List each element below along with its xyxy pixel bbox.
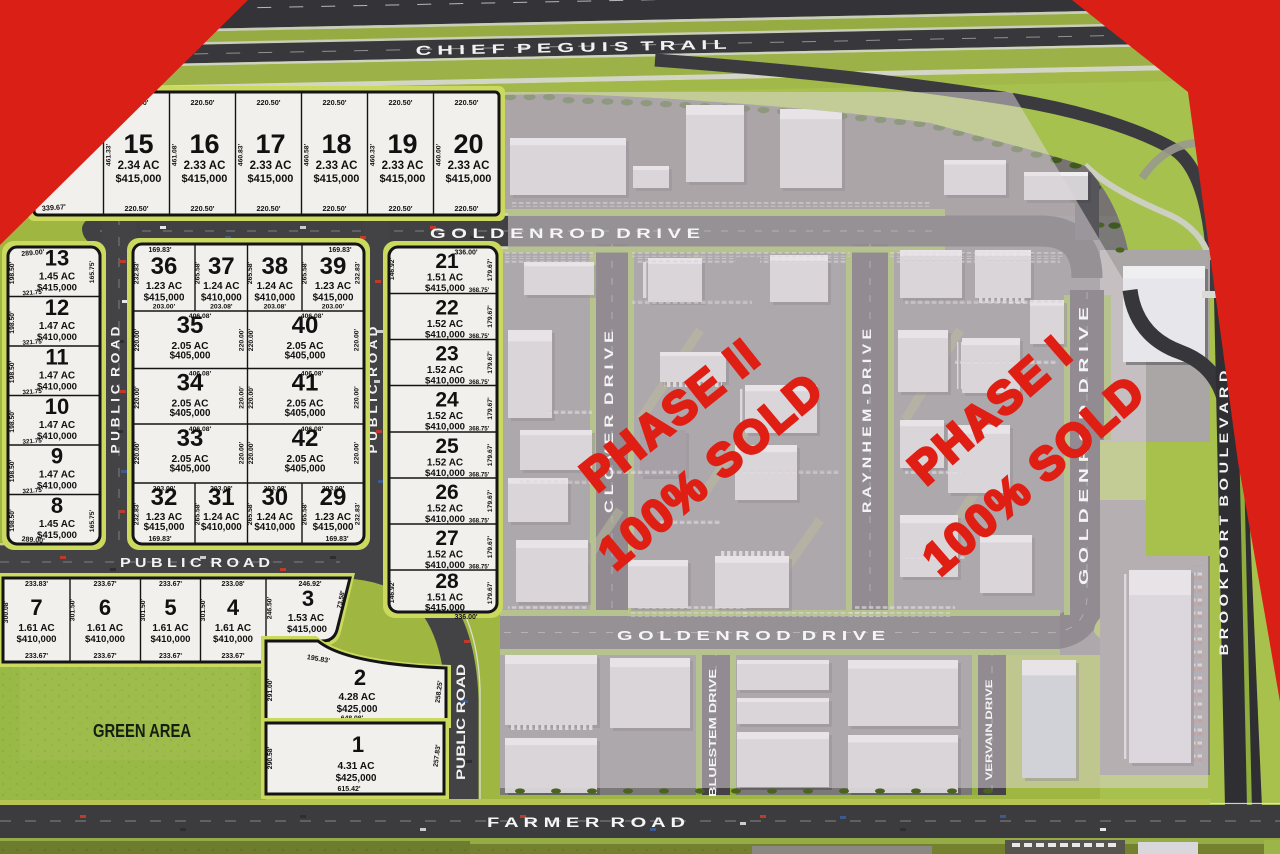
svg-text:4.28 AC: 4.28 AC — [339, 692, 377, 703]
svg-text:179.67': 179.67' — [487, 397, 494, 420]
svg-text:1.53 AC: 1.53 AC — [288, 613, 324, 624]
svg-text:220.50': 220.50' — [256, 204, 280, 213]
svg-text:220.00': 220.00' — [354, 328, 361, 351]
svg-text:169.83': 169.83' — [148, 247, 171, 254]
svg-text:$405,000: $405,000 — [285, 464, 326, 475]
svg-text:$415,000: $415,000 — [287, 624, 327, 635]
svg-text:1.23 AC: 1.23 AC — [146, 281, 182, 292]
svg-text:$415,000: $415,000 — [144, 522, 185, 533]
svg-text:406.08': 406.08' — [189, 426, 212, 433]
svg-text:$415,000: $415,000 — [116, 173, 162, 185]
svg-text:203.08': 203.08' — [264, 486, 287, 493]
svg-text:$415,000: $415,000 — [313, 293, 354, 304]
svg-text:1.47 AC: 1.47 AC — [39, 470, 75, 481]
svg-text:2: 2 — [354, 665, 366, 690]
svg-text:$410,000: $410,000 — [201, 522, 242, 533]
svg-text:28: 28 — [435, 570, 459, 593]
svg-text:$410,000: $410,000 — [85, 634, 125, 645]
svg-text:1.47 AC: 1.47 AC — [39, 420, 75, 431]
svg-text:265.58': 265.58' — [247, 502, 254, 525]
svg-text:220.50': 220.50' — [322, 98, 346, 107]
svg-text:233.67': 233.67' — [93, 581, 116, 588]
svg-text:165.75': 165.75' — [89, 260, 96, 283]
svg-text:$410,000: $410,000 — [425, 468, 465, 479]
svg-text:198.50': 198.50' — [9, 459, 16, 482]
svg-text:22: 22 — [435, 297, 458, 320]
svg-text:165.75': 165.75' — [89, 509, 96, 532]
svg-text:203.00': 203.00' — [153, 304, 176, 311]
svg-text:$405,000: $405,000 — [285, 351, 326, 362]
svg-text:301.50': 301.50' — [70, 598, 77, 621]
svg-text:406.08': 406.08' — [301, 313, 324, 320]
svg-text:9: 9 — [51, 444, 63, 469]
svg-text:232.83': 232.83' — [355, 261, 362, 284]
svg-text:368.75': 368.75' — [469, 472, 490, 479]
svg-text:233.08': 233.08' — [221, 581, 244, 588]
svg-text:6: 6 — [99, 595, 111, 620]
svg-text:460.83': 460.83' — [238, 143, 245, 166]
svg-text:1.52 AC: 1.52 AC — [427, 319, 463, 330]
svg-text:2.33 AC: 2.33 AC — [316, 160, 358, 172]
svg-text:$415,000: $415,000 — [144, 293, 185, 304]
svg-text:1.52 AC: 1.52 AC — [427, 458, 463, 469]
svg-text:4.31 AC: 4.31 AC — [338, 761, 376, 772]
svg-text:220.00': 220.00' — [134, 386, 141, 409]
svg-text:1.45 AC: 1.45 AC — [39, 272, 75, 283]
svg-text:179.67': 179.67' — [487, 443, 494, 466]
svg-text:1.23 AC: 1.23 AC — [315, 281, 351, 292]
svg-text:10: 10 — [45, 394, 69, 419]
svg-text:290.58': 290.58' — [267, 746, 274, 769]
svg-text:P U B L I C R O A D: P U B L I C R O A D — [120, 555, 270, 570]
svg-text:1.61 AC: 1.61 AC — [87, 623, 123, 634]
svg-text:$415,000: $415,000 — [248, 173, 294, 185]
svg-text:368.75': 368.75' — [469, 379, 490, 386]
svg-text:$415,000: $415,000 — [425, 603, 465, 614]
svg-text:2.33 AC: 2.33 AC — [448, 160, 490, 172]
svg-text:$405,000: $405,000 — [170, 464, 211, 475]
svg-text:203.08': 203.08' — [210, 304, 233, 311]
svg-text:203.00': 203.00' — [322, 486, 345, 493]
svg-text:$410,000: $410,000 — [213, 634, 253, 645]
svg-text:203.00': 203.00' — [153, 486, 176, 493]
svg-text:220.00': 220.00' — [248, 328, 255, 351]
svg-text:$405,000: $405,000 — [170, 408, 211, 419]
svg-text:5: 5 — [164, 595, 176, 620]
svg-text:2.33 AC: 2.33 AC — [382, 160, 424, 172]
svg-text:1.24 AC: 1.24 AC — [203, 281, 239, 292]
svg-text:20: 20 — [453, 129, 483, 159]
svg-text:233.67': 233.67' — [159, 653, 182, 660]
svg-text:220.50': 220.50' — [256, 98, 280, 107]
svg-text:$410,000: $410,000 — [425, 376, 465, 387]
svg-text:2.33 AC: 2.33 AC — [184, 160, 226, 172]
svg-text:198.50': 198.50' — [9, 261, 16, 284]
svg-text:$410,000: $410,000 — [150, 634, 190, 645]
svg-text:368.75': 368.75' — [469, 287, 490, 294]
svg-text:246.50': 246.50' — [267, 596, 274, 619]
svg-text:220.50': 220.50' — [388, 98, 412, 107]
svg-text:13: 13 — [45, 246, 69, 271]
svg-text:220.00': 220.00' — [239, 386, 246, 409]
svg-text:$410,000: $410,000 — [201, 293, 242, 304]
svg-text:220.00': 220.00' — [248, 386, 255, 409]
svg-text:BLUESTEM DRIVE: BLUESTEM DRIVE — [708, 669, 719, 797]
svg-text:461.33': 461.33' — [106, 143, 113, 166]
svg-text:220.00': 220.00' — [134, 441, 141, 464]
svg-text:265.58': 265.58' — [302, 502, 309, 525]
svg-text:$410,000: $410,000 — [16, 634, 56, 645]
svg-text:36: 36 — [151, 253, 178, 280]
svg-text:198.50': 198.50' — [9, 360, 16, 383]
svg-text:$410,000: $410,000 — [425, 330, 465, 341]
svg-text:220.50': 220.50' — [454, 204, 478, 213]
svg-text:301.50': 301.50' — [200, 598, 207, 621]
svg-text:406.08': 406.08' — [301, 426, 324, 433]
svg-text:179.67': 179.67' — [487, 351, 494, 374]
svg-text:$425,000: $425,000 — [337, 704, 378, 715]
svg-text:233.67': 233.67' — [159, 581, 182, 588]
svg-text:19: 19 — [387, 129, 417, 159]
svg-text:220.50': 220.50' — [388, 204, 412, 213]
svg-text:PUBLIC ROAD: PUBLIC ROAD — [454, 664, 468, 780]
svg-text:1.52 AC: 1.52 AC — [427, 504, 463, 515]
svg-text:F A R M E R R O A D: F A R M E R R O A D — [487, 815, 685, 830]
svg-text:179.67': 179.67' — [487, 489, 494, 512]
svg-text:G O L D E N R O D D R I V E: G O L D E N R O D D R I V E — [430, 226, 700, 241]
svg-text:220.00': 220.00' — [354, 386, 361, 409]
svg-text:16: 16 — [189, 129, 219, 159]
svg-text:368.75': 368.75' — [469, 333, 490, 340]
svg-text:7: 7 — [30, 595, 42, 620]
svg-text:24: 24 — [435, 389, 459, 412]
svg-text:203.00': 203.00' — [322, 304, 345, 311]
svg-text:169.83': 169.83' — [328, 247, 351, 254]
svg-text:3: 3 — [302, 586, 314, 611]
svg-text:291.00': 291.00' — [267, 678, 274, 701]
svg-text:301.50': 301.50' — [140, 598, 147, 621]
svg-text:368.75': 368.75' — [469, 564, 490, 571]
svg-text:26: 26 — [435, 481, 458, 504]
svg-text:203.08': 203.08' — [210, 486, 233, 493]
svg-text:220.00': 220.00' — [239, 328, 246, 351]
svg-text:198.50': 198.50' — [9, 410, 16, 433]
svg-text:2.34 AC: 2.34 AC — [118, 160, 160, 172]
svg-text:$410,000: $410,000 — [254, 293, 295, 304]
svg-text:232.83': 232.83' — [134, 261, 141, 284]
svg-text:233.67': 233.67' — [25, 653, 48, 660]
svg-text:461.08': 461.08' — [172, 143, 179, 166]
svg-text:220.50': 220.50' — [454, 98, 478, 107]
svg-text:336.00': 336.00' — [454, 250, 477, 257]
svg-text:$405,000: $405,000 — [285, 408, 326, 419]
svg-text:220.50': 220.50' — [190, 98, 214, 107]
svg-text:233.67': 233.67' — [93, 653, 116, 660]
svg-text:8: 8 — [51, 493, 63, 518]
svg-text:$415,000: $415,000 — [313, 522, 354, 533]
svg-text:1.45 AC: 1.45 AC — [39, 519, 75, 530]
svg-text:615.42': 615.42' — [337, 786, 360, 793]
svg-text:$410,000: $410,000 — [254, 522, 295, 533]
svg-text:1.52 AC: 1.52 AC — [427, 365, 463, 376]
svg-text:G O L D E N R O D D R I V E: G O L D E N R O D D R I V E — [617, 629, 885, 643]
svg-text:321.75': 321.75' — [22, 487, 44, 495]
svg-text:1: 1 — [352, 732, 364, 757]
svg-text:1.51 AC: 1.51 AC — [427, 273, 463, 284]
svg-text:198.50': 198.50' — [9, 509, 16, 532]
svg-text:368.75': 368.75' — [469, 518, 490, 525]
svg-text:12: 12 — [45, 295, 69, 320]
svg-text:$415,000: $415,000 — [182, 173, 228, 185]
svg-text:265.58': 265.58' — [195, 502, 202, 525]
svg-text:1.61 AC: 1.61 AC — [18, 623, 54, 634]
svg-text:$415,000: $415,000 — [380, 173, 426, 185]
svg-text:169.83': 169.83' — [148, 536, 171, 543]
svg-text:406.08': 406.08' — [301, 371, 324, 378]
svg-text:220.50': 220.50' — [190, 204, 214, 213]
svg-text:1.47 AC: 1.47 AC — [39, 371, 75, 382]
svg-text:406.08': 406.08' — [189, 371, 212, 378]
svg-text:220.00': 220.00' — [354, 441, 361, 464]
svg-text:1.52 AC: 1.52 AC — [427, 550, 463, 561]
svg-text:$410,000: $410,000 — [425, 514, 465, 525]
svg-text:321.75': 321.75' — [22, 289, 44, 297]
svg-text:220.50': 220.50' — [124, 204, 148, 213]
svg-text:4: 4 — [227, 595, 240, 620]
svg-text:460.33': 460.33' — [370, 143, 377, 166]
svg-text:339.67': 339.67' — [42, 202, 67, 213]
svg-text:$415,000: $415,000 — [446, 173, 492, 185]
svg-text:$415,000: $415,000 — [314, 173, 360, 185]
svg-text:336.00': 336.00' — [454, 614, 477, 621]
svg-text:P U B L I C R O A D: P U B L I C R O A D — [109, 326, 123, 453]
svg-text:460.00': 460.00' — [436, 143, 443, 166]
svg-text:368.75': 368.75' — [469, 426, 490, 433]
svg-text:220.50': 220.50' — [322, 204, 346, 213]
svg-text:27: 27 — [435, 527, 458, 550]
svg-text:39: 39 — [320, 253, 347, 280]
svg-text:$415,000: $415,000 — [425, 283, 465, 294]
svg-text:11: 11 — [45, 345, 68, 370]
svg-text:179.67': 179.67' — [487, 535, 494, 558]
svg-text:406.08': 406.08' — [189, 313, 212, 320]
svg-text:1.52 AC: 1.52 AC — [427, 411, 463, 422]
svg-text:300.08': 300.08' — [3, 600, 10, 623]
svg-text:265.58': 265.58' — [247, 261, 254, 284]
svg-text:17: 17 — [255, 129, 285, 159]
svg-text:38: 38 — [261, 253, 288, 280]
svg-text:2.33 AC: 2.33 AC — [250, 160, 292, 172]
svg-text:1.61 AC: 1.61 AC — [215, 623, 251, 634]
svg-text:179.67': 179.67' — [487, 258, 494, 281]
svg-text:1.47 AC: 1.47 AC — [39, 321, 75, 332]
svg-text:321.75': 321.75' — [22, 388, 44, 396]
svg-text:37: 37 — [208, 253, 235, 280]
svg-text:B R O O K P O R T B O U L E V: B R O O K P O R T B O U L E V A R D — [1219, 371, 1231, 656]
svg-text:15: 15 — [123, 129, 153, 159]
svg-text:VERVAIN DRIVE: VERVAIN DRIVE — [984, 680, 995, 781]
svg-text:146.92': 146.92' — [389, 580, 396, 603]
svg-text:460.58': 460.58' — [304, 143, 311, 166]
svg-text:265.58': 265.58' — [195, 261, 202, 284]
svg-text:198.50': 198.50' — [9, 311, 16, 334]
svg-text:220.00': 220.00' — [239, 441, 246, 464]
svg-text:321.75': 321.75' — [22, 338, 44, 346]
svg-text:179.67': 179.67' — [487, 581, 494, 604]
svg-text:1.24 AC: 1.24 AC — [257, 281, 293, 292]
svg-text:220.00': 220.00' — [134, 328, 141, 351]
svg-text:25: 25 — [435, 435, 459, 458]
svg-text:18: 18 — [321, 129, 351, 159]
svg-text:203.08': 203.08' — [264, 304, 287, 311]
svg-text:233.67': 233.67' — [221, 653, 244, 660]
svg-text:321.75': 321.75' — [22, 437, 44, 445]
svg-text:169.83': 169.83' — [325, 536, 348, 543]
svg-text:232.83': 232.83' — [355, 502, 362, 525]
svg-text:233.83': 233.83' — [25, 581, 48, 588]
svg-text:$410,000: $410,000 — [425, 422, 465, 433]
svg-text:GREEN AREA: GREEN AREA — [93, 721, 191, 741]
svg-text:232.83': 232.83' — [134, 502, 141, 525]
svg-text:220.00': 220.00' — [248, 441, 255, 464]
svg-text:R A Y N H E M - D R I V E: R A Y N H E M - D R I V E — [862, 329, 874, 513]
svg-text:$425,000: $425,000 — [336, 773, 377, 784]
svg-text:146.92': 146.92' — [389, 257, 396, 280]
svg-text:179.67': 179.67' — [487, 305, 494, 328]
svg-text:265.58': 265.58' — [302, 261, 309, 284]
svg-text:1.61 AC: 1.61 AC — [152, 623, 188, 634]
svg-text:23: 23 — [435, 343, 458, 366]
svg-text:$405,000: $405,000 — [170, 351, 211, 362]
